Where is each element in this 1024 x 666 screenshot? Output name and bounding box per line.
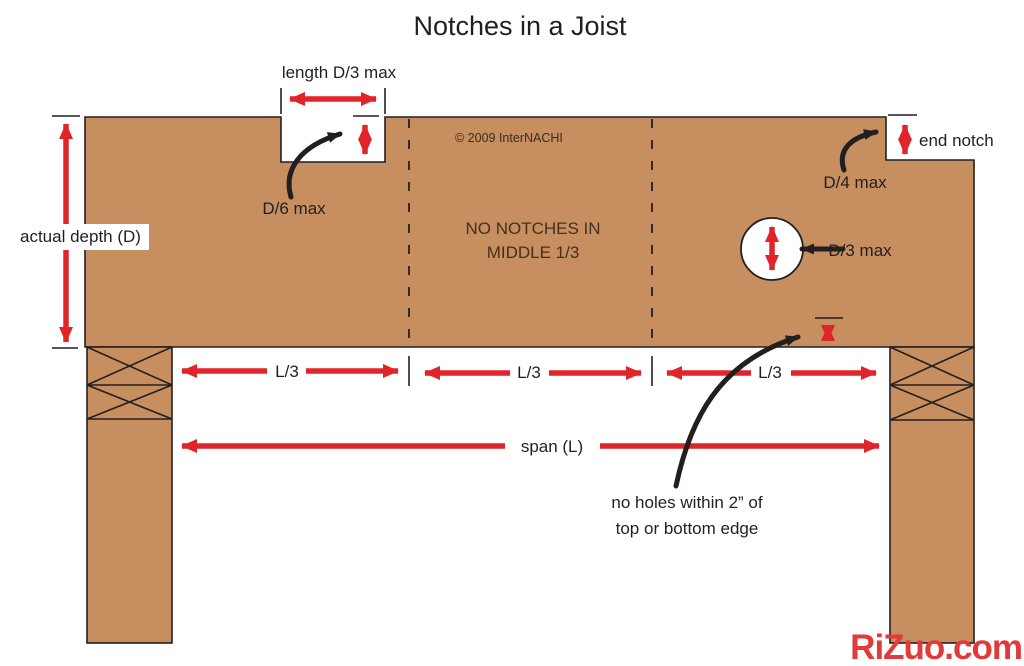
joist-diagram: Notches in a Joist length D/3 max D/6 ma… [0,0,1024,666]
third-left-label: L/3 [275,362,299,382]
diagram-canvas [0,0,1024,666]
hole-diameter-label: D/3 max [828,241,891,261]
right-post [890,347,974,643]
edge-clearance-note: no holes within 2” of top or bottom edge [611,490,762,542]
edge-clearance-line2: top or bottom edge [611,516,762,542]
edge-clearance-line1: no holes within 2” of [611,490,762,516]
notch-depth-label: D/6 max [262,199,325,219]
no-notches-line1: NO NOTCHES IN [465,217,600,241]
diagram-title: Notches in a Joist [413,11,626,41]
no-notches-notice: NO NOTCHES IN MIDDLE 1/3 [465,217,600,265]
watermark-text: RiZuo.com [850,630,1022,666]
actual-depth-label: actual depth (D) [12,224,149,250]
no-notches-line2: MIDDLE 1/3 [465,241,600,265]
copyright-text: © 2009 InterNACHI [455,131,563,145]
left-post [87,347,172,643]
end-notch-depth-label: D/4 max [823,173,886,193]
end-notch-label: end notch [919,131,994,151]
edge-clearance-callout-arrow [676,337,798,486]
third-right-label: L/3 [758,363,782,383]
notch-length-label: length D/3 max [282,63,396,83]
span-label: span (L) [521,437,583,457]
third-middle-label: L/3 [517,363,541,383]
